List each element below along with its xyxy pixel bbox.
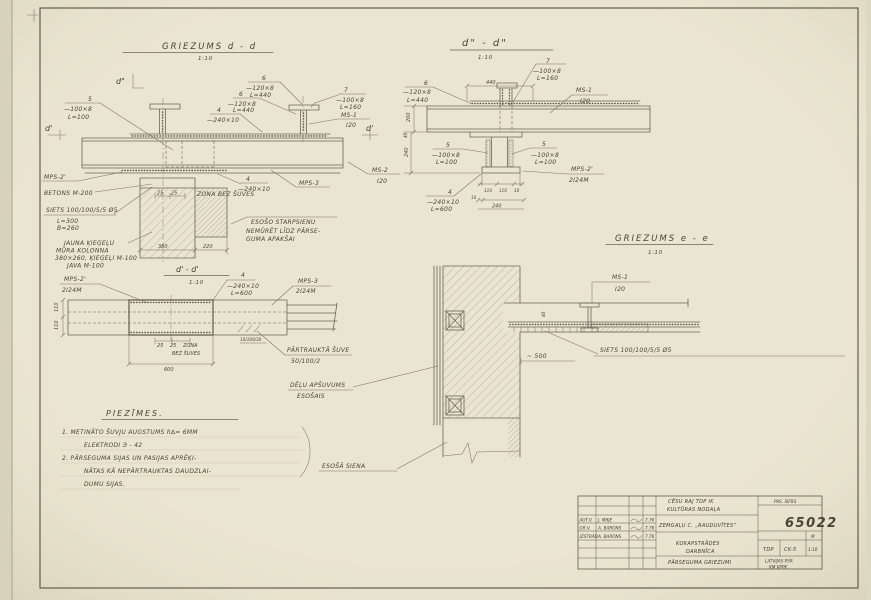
d1d1-pos4: 4 bbox=[241, 272, 245, 279]
d1d1-zona-1: ZONA bbox=[182, 343, 198, 349]
tb-project: ZEMGAĻU C. „RAUDUVĪTES” bbox=[658, 522, 736, 529]
tb-sheet-scale: 1:10 bbox=[808, 547, 818, 552]
tb-row-name: A. BARONS bbox=[597, 534, 622, 539]
d1d1-dim-25b: 25 bbox=[170, 343, 176, 349]
d2d2-pos5r-len: L=100 bbox=[535, 159, 556, 166]
d2d2-dim-110a: 110 bbox=[484, 188, 492, 193]
dd-mps2: MPS-2' bbox=[44, 174, 66, 181]
note-2-line-3: DUMU SIJAS. bbox=[84, 481, 125, 488]
d2d2-dim-10b: 10 bbox=[471, 195, 477, 200]
dd-column-note-1: JAUNA ĶIEĢEĻU bbox=[63, 240, 115, 247]
tb-row-role: IZSTRĀD. bbox=[580, 534, 600, 539]
d2d2-scale: 1:10 bbox=[478, 55, 493, 61]
ee-ms1-profile: I20 bbox=[615, 286, 625, 293]
tb-sheet-title: PĀRSEGUMA GRIEZUMI bbox=[668, 559, 732, 566]
d2d2-pos5l: 5 bbox=[446, 142, 450, 149]
d2d2-dim-40: 40 bbox=[403, 132, 408, 138]
dd-title: GRIEZUMS d - d bbox=[162, 42, 257, 52]
d2d2-pos6-len: L=440 bbox=[407, 97, 428, 104]
d1d1-zona-2: BEZ ŠUVES bbox=[172, 350, 201, 357]
ee-scale: 1:10 bbox=[648, 250, 663, 256]
d1d1-boarding-2: ESOŠAIS bbox=[297, 393, 325, 400]
ee-timber-block-upper bbox=[446, 311, 464, 330]
ee-screed-hatch bbox=[592, 324, 648, 332]
d2d2-mps2: MPS-2' bbox=[571, 166, 593, 173]
dd-pos6b-len: L=440 bbox=[233, 107, 254, 114]
dd-pos5-spec: —100×8 bbox=[64, 106, 92, 113]
d2d2-dim-440: 440 bbox=[486, 80, 496, 86]
d2d2-pos6-spec: —120×8 bbox=[403, 89, 431, 96]
notes-heading: PIEZĪMES. bbox=[106, 408, 164, 418]
paper-right-edge bbox=[866, 0, 871, 600]
d2d2-side-plate-left bbox=[486, 140, 490, 167]
dd-ms1: MS-1 bbox=[341, 112, 357, 119]
tb-client-line-1: CĒSU RAJ TDP IK bbox=[668, 498, 714, 505]
ee-siets: SIETS 100/100/5/5 Ø5 bbox=[600, 347, 672, 354]
tb-row-date: 7.76 bbox=[645, 534, 655, 539]
d2d2-dim-240v: 240 bbox=[404, 147, 410, 157]
dd-pos7: 7 bbox=[344, 87, 348, 94]
tb-row-role: AUT.V. bbox=[579, 518, 593, 523]
d1d1-pos4-len: L=600 bbox=[231, 290, 252, 297]
d2d2-mps2-profile: 2I24M bbox=[569, 177, 589, 184]
dd-partition-note-1: ESOŠO STARPSIENU bbox=[251, 219, 316, 226]
dd-partition-note-3: GUMA APAKŠAI bbox=[246, 236, 295, 243]
dd-siets-l: L=300 bbox=[57, 218, 78, 225]
dd-marker-top: d" bbox=[116, 77, 125, 86]
note-2-line-2: NĀTAS KĀ NEPĀRTRAUKTAS DAUDZLAI- bbox=[84, 468, 211, 475]
tb-object-line-2: DARBNĪCA bbox=[686, 548, 715, 555]
tb-sheet-code: CK-5 bbox=[784, 547, 796, 553]
paper-left-edge bbox=[0, 0, 12, 600]
ee-title: GRIEZUMS e - e bbox=[615, 234, 710, 244]
dd-siets: SIETS 100/100/5/5 Ø5 bbox=[46, 207, 118, 214]
tb-row-name: A. BARONS bbox=[597, 526, 622, 531]
d2d2-pos5l-spec: —100×8 bbox=[432, 152, 460, 159]
d1d1-dim-110a: 110 bbox=[54, 302, 60, 312]
ee-ms1: MS-1 bbox=[612, 274, 628, 281]
tb-client-line-2: KULTŪRAS NODAĻA bbox=[667, 506, 721, 513]
dd-column-note-3: 380×260, ĶIEĢEĻI M-100 bbox=[55, 255, 137, 262]
dd-pos6b: 6 bbox=[239, 91, 243, 98]
dd-mps3: MPS-3 bbox=[299, 180, 319, 187]
drawing-canvas: GRIEZUMS d - d 1:10 d" d' d' 5 —100×8 L=… bbox=[0, 0, 871, 600]
d1d1-pos4-spec: —240×10 bbox=[227, 283, 259, 290]
ee-dim-40: 40 bbox=[541, 311, 546, 317]
d1d1-mps2-profile: 2I24M bbox=[62, 287, 82, 294]
dd-pos5: 5 bbox=[88, 96, 92, 103]
dd-pos6a: 6 bbox=[262, 75, 266, 82]
tb-stage: TDP bbox=[763, 547, 774, 553]
d2d2-dim-110b: 110 bbox=[499, 188, 507, 193]
note-2-line-1: 2. PĀRSEGUMA SIJAS UN PASIJAS APRĒĶI- bbox=[62, 455, 197, 462]
ee-dim-500: ~ 500 bbox=[527, 353, 547, 360]
d2d2-ms1: MS-1 bbox=[576, 87, 592, 94]
tb-m-label: M bbox=[811, 534, 815, 539]
d2d2-pos6: 6 bbox=[424, 80, 428, 87]
dd-siets-b: B=260 bbox=[57, 225, 79, 232]
tb-org-line-2: KM KPPK bbox=[769, 565, 788, 570]
ee-wall-hatch bbox=[443, 266, 520, 418]
d1d1-mps3: MPS-3 bbox=[298, 278, 318, 285]
tb-object-line-1: KOKAPSTRĀDES bbox=[676, 540, 720, 547]
d2d2-pos4: 4 bbox=[448, 189, 452, 196]
dd-dim-25a: 25 bbox=[157, 191, 163, 197]
tb-row-name: J. MIĶE bbox=[597, 518, 612, 523]
dd-pos7-len: L=160 bbox=[340, 104, 361, 111]
note-1-line-2: ELEKTRODI Э - 42 bbox=[84, 442, 142, 449]
dd-pos7-spec: —100×8 bbox=[336, 97, 364, 104]
d1d1-boarding-1: DĒĻU APŠUVUMS bbox=[290, 382, 345, 389]
d1d1-dim-25a: 25 bbox=[157, 343, 163, 349]
d1d1-dim-600: 600 bbox=[164, 367, 174, 373]
d2d2-pos7: 7 bbox=[546, 58, 550, 65]
dd-marker-left: d' bbox=[45, 124, 52, 133]
d1d1-mps2: MPS-2' bbox=[64, 276, 86, 283]
d2d2-pos4-len: L=600 bbox=[431, 206, 452, 213]
dd-dim-220: 220 bbox=[203, 244, 213, 250]
dd-dim-25b: 25 bbox=[171, 191, 177, 197]
tb-row-date: 7.76 bbox=[645, 526, 655, 531]
dd-pos6a-spec: —120×8 bbox=[246, 85, 274, 92]
dd-dim-380: 380 bbox=[158, 244, 168, 250]
dd-partition-note-2: NEMŪRĒT LĪDZ PĀRSE- bbox=[246, 228, 321, 235]
tb-row-role: GR.V. bbox=[580, 526, 591, 531]
d2d2-ms1-profile: I20 bbox=[580, 98, 590, 105]
ee-existing-wall-label: ESOŠĀ SIENA bbox=[322, 463, 365, 470]
d2d2-pos7-spec: —100×8 bbox=[533, 68, 561, 75]
d2d2-dim-200: 200 bbox=[406, 112, 412, 122]
tb-pas-sifrs: PAS. ŠIFRS bbox=[774, 499, 797, 504]
d1d1-title: d' - d' bbox=[176, 265, 199, 274]
dd-pos4b: 4 bbox=[246, 176, 250, 183]
ee-slab-pocket bbox=[503, 302, 520, 333]
dd-pos4a: 4 bbox=[217, 107, 221, 114]
dd-ms1-profile: I20 bbox=[346, 122, 356, 129]
d2d2-pos5r: 5 bbox=[542, 141, 546, 148]
d2d2-side-plate-right bbox=[509, 140, 513, 167]
dd-scale: 1:10 bbox=[198, 56, 213, 62]
note-1-line-1: 1. METINĀTO ŠUVJU AUGSTUMS h∆= 6MM bbox=[62, 429, 198, 436]
d1d1-mps3-profile: 2I24M bbox=[296, 288, 316, 295]
d1d1-scale: 1:10 bbox=[189, 280, 204, 286]
dd-pos6a-len: L=440 bbox=[250, 92, 271, 99]
dd-pos4a-spec: —240×10 bbox=[207, 117, 239, 124]
d2d2-title: d" - d" bbox=[462, 38, 508, 49]
d2d2-dim-10a: 10 bbox=[514, 188, 520, 193]
d2d2-pos5l-len: L=100 bbox=[436, 159, 457, 166]
dd-betons: BETONS M-200 bbox=[44, 190, 93, 197]
dd-ms2-profile: I20 bbox=[377, 178, 387, 185]
dd-pos5-len: L=100 bbox=[68, 114, 89, 121]
dd-zona-label: ZONA BEZ ŠUVES bbox=[196, 191, 254, 198]
d1d1-seam-spec: 50/100/2 bbox=[291, 358, 320, 365]
d2d2-pos4-spec: —240×10 bbox=[427, 199, 459, 206]
dd-column-note-4: JAVA M-100 bbox=[66, 263, 104, 270]
tb-org-line-1: LATVIJAS PSR bbox=[765, 559, 793, 564]
dd-column-note-2: MŪRA KOLONNA bbox=[56, 248, 109, 255]
d1d1-dim-110b: 110 bbox=[54, 320, 60, 330]
dd-marker-right: d' bbox=[366, 124, 373, 133]
d1d1-seam-label: PĀRTRAUKTĀ ŠUVE bbox=[287, 347, 349, 354]
d2d2-pos7-len: L=160 bbox=[537, 75, 558, 82]
dd-ms2: MS-2 bbox=[372, 167, 388, 174]
d2d2-dim-240: 240 bbox=[492, 204, 502, 210]
d1d1-weld-dims: 10/100/30 bbox=[240, 337, 262, 342]
tb-row-date: 7.76 bbox=[645, 518, 655, 523]
d2d2-pos5r-spec: —100×8 bbox=[531, 152, 559, 159]
blueprint-sheet: GRIEZUMS d - d 1:10 d" d' d' 5 —100×8 L=… bbox=[0, 0, 871, 600]
ee-timber-block-lower bbox=[446, 396, 464, 415]
tb-drawing-number: 65022 bbox=[785, 516, 838, 531]
